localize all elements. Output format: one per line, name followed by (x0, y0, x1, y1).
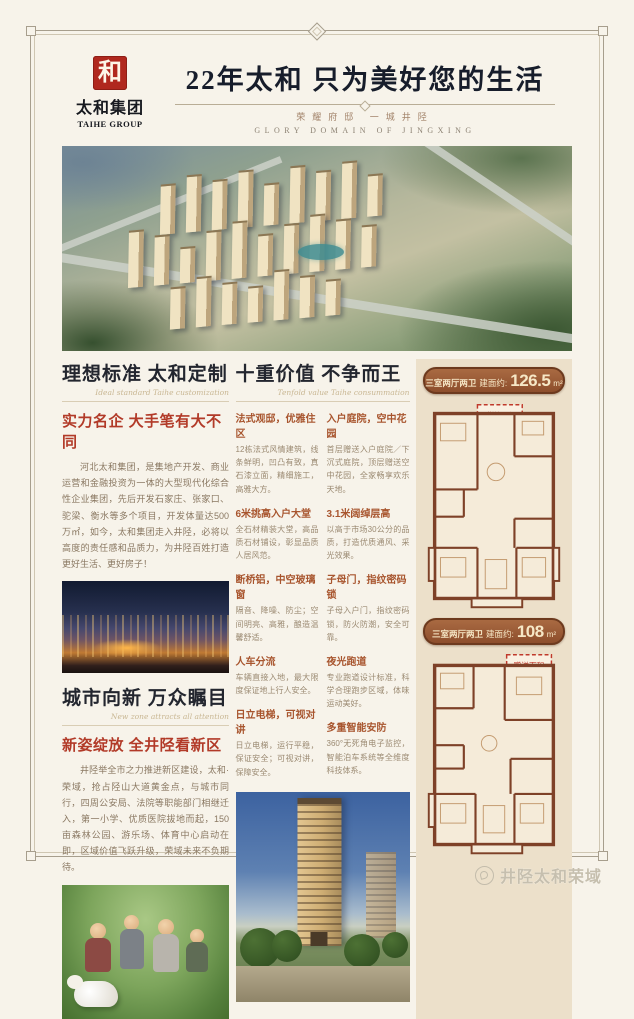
subtitle-english: GLORY DOMAIN OF JINGXING (158, 126, 572, 135)
value-item-body: 车辆直接入地，最大限度保证地上行人安全。 (236, 671, 319, 697)
logo-seal-icon: 和 (93, 56, 127, 90)
footer: 井陉太和荣域 (475, 863, 602, 887)
floorplan-area-value: 126.5 (510, 369, 550, 392)
value-item-body: 首层赠送入户庭院／下沉式庭院，顶层赠送空中花园，全家畅享欢乐天地。 (327, 443, 410, 496)
main-tower-graphic (297, 798, 341, 946)
title-block: 22年太和 只为美好您的生活 荣耀府邸 一城井陉 GLORY DOMAIN OF… (158, 54, 572, 144)
floorplan-1-drawing: 赠送面积 (421, 400, 567, 612)
value-item-title: 3.1米阔绰层高 (327, 505, 410, 520)
frame-diamond-icon (308, 22, 326, 40)
floorplan-area-unit: m² (553, 372, 562, 395)
value-grid: 法式观邸，优雅住区 12栋法式风情建筑，线条鲜明，凹凸有致，真石漆立面，精细施工… (236, 410, 410, 788)
middle-column: 十重价值 不争而王 Tenfold value Taihe consummati… (236, 359, 410, 1019)
section-script-caption: Tenfold value Taihe consummation (236, 388, 410, 397)
section-heading-city-renewal: 城市向新 万众瞩目 (62, 683, 229, 710)
poster: 和 太和集团 TAIHE GROUP 22年太和 只为美好您的生活 荣耀府邸 一… (0, 0, 634, 897)
plaza-graphic (236, 966, 410, 1002)
value-item-title: 夜光跑道 (327, 653, 410, 668)
floorplan-panel: 三室两厅两卫 建面约: 126.5 m² 赠送面积 (416, 359, 572, 1019)
value-item-body: 全石材精装大堂，高品质石材铺设，彰显品质人居风范。 (236, 523, 319, 563)
dog-graphic (74, 981, 118, 1007)
header: 和 太和集团 TAIHE GROUP 22年太和 只为美好您的生活 荣耀府邸 一… (62, 54, 572, 144)
floorplan-type: 三室两厅两卫 (425, 372, 476, 395)
paragraph-company-intro: 河北太和集团，是集地产开发、商业运营和金融投资为一体的大型现代化综合性企业集团，… (62, 459, 229, 572)
taihe-logo: 和 太和集团 TAIHE GROUP (62, 54, 158, 144)
value-column-left: 法式观邸，优雅住区 12栋法式风情建筑，线条鲜明，凹凸有致，真石漆立面，精细施工… (236, 410, 319, 788)
value-item-body: 日立电梯，运行平稳，保证安全；可视对讲，保障安全。 (236, 739, 319, 779)
person-graphic (124, 915, 139, 930)
account-watermark-icon (475, 866, 494, 885)
section-heading-ideal-standard: 理想标准 太和定制 (62, 359, 229, 386)
value-item-title: 入户庭院，空中花园 (327, 410, 410, 440)
logo-name-english: TAIHE GROUP (62, 119, 158, 129)
value-item-body: 隔音、降噪、防尘；空间明亮、高雅，酿造温馨舒适。 (236, 604, 319, 644)
tree-graphic (344, 934, 380, 968)
tree-graphic (272, 930, 302, 962)
floorplan-area-value: 108 (517, 620, 544, 643)
family-photo (62, 885, 229, 1019)
city-night-photo (62, 581, 229, 673)
frame-corner-icon (26, 26, 36, 36)
section-divider (62, 401, 229, 402)
floorplan-1-badge: 三室两厅两卫 建面约: 126.5 m² (423, 367, 565, 394)
floorplan-area-label: 建面约: (486, 623, 514, 646)
pool-graphic (298, 244, 344, 260)
left-column: 理想标准 太和定制 Ideal standard Taihe customiza… (62, 359, 229, 1019)
logo-name-chinese: 太和集团 (62, 94, 158, 118)
tree-graphic (382, 932, 408, 958)
value-item-title: 6米挑高入户大堂 (236, 505, 319, 520)
account-name: 井陉太和荣域 (500, 863, 602, 887)
value-item-title: 法式观邸，优雅住区 (236, 410, 319, 440)
side-building-graphic (366, 852, 396, 938)
value-item-body: 360°无死角电子监控，智能泊车系统等全维度科技体系。 (327, 737, 410, 777)
value-item-title: 子母门，指纹密码锁 (327, 571, 410, 601)
subheading-new-district: 新姿绽放 全井陉看新区 (62, 734, 229, 755)
floorplan-2-badge: 三室两厅两卫 建面约: 108 m² (423, 618, 565, 645)
paragraph-district-intro: 井陉举全市之力推进新区建设，太和·荣域，抢占陉山大道黄金点，与城市同行，四周公安… (62, 762, 229, 875)
floorplan-area-label: 建面约: (479, 372, 507, 395)
frame-corner-icon (598, 26, 608, 36)
value-item-body: 专业跑道设计标准，科学合理跑步区域，体味运动美好。 (327, 671, 410, 711)
value-item-title: 人车分流 (236, 653, 319, 668)
section-divider (236, 401, 410, 402)
person-graphic (158, 919, 174, 935)
subheading-strength: 实力名企 大手笔有大不同 (62, 410, 229, 452)
value-item-body: 以高于市场30公分的品质，打造优质通风、采光效果。 (327, 523, 410, 563)
floorplan-type: 三室两厅两卫 (432, 623, 483, 646)
value-item-body: 12栋法式风情建筑，线条鲜明，凹凸有致，真石漆立面，精细施工，高雅大方。 (236, 443, 319, 496)
section-divider (62, 725, 229, 726)
aerial-rendering-photo (62, 146, 572, 351)
frame-corner-icon (26, 851, 36, 861)
value-column-right: 入户庭院，空中花园 首层赠送入户庭院／下沉式庭院，顶层赠送空中花园，全家畅享欢乐… (327, 410, 410, 788)
value-item-title: 断桥铝，中空玻璃窗 (236, 571, 319, 601)
floorplan-2-drawing: 赠送面积 (421, 651, 567, 863)
page-title: 22年太和 只为美好您的生活 (158, 58, 572, 97)
value-item-body: 子母入户门，指纹密码锁，防火防潮，安全可靠。 (327, 604, 410, 644)
floorplan-area-unit: m² (547, 623, 556, 646)
section-script-caption: New zone attracts all attention (62, 712, 229, 721)
value-item-title: 多重智能安防 (327, 719, 410, 734)
section-script-caption: Ideal standard Taihe customization (62, 388, 229, 397)
frame-corner-icon (598, 851, 608, 861)
person-graphic (90, 923, 106, 939)
section-heading-ten-values: 十重价值 不争而王 (236, 359, 410, 386)
subtitle-chinese: 荣耀府邸 一城井陉 (158, 110, 572, 123)
person-graphic (190, 929, 204, 943)
value-item-title: 日立电梯，可视对讲 (236, 706, 319, 736)
title-divider (175, 104, 555, 105)
